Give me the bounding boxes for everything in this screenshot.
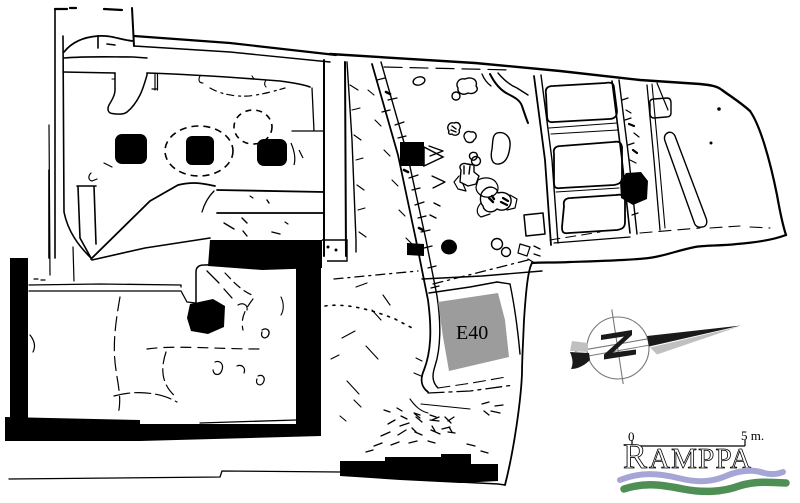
svg-text:5 m.: 5 m. bbox=[741, 428, 764, 443]
svg-text:E40: E40 bbox=[456, 322, 488, 344]
svg-text:R: R bbox=[623, 436, 647, 476]
